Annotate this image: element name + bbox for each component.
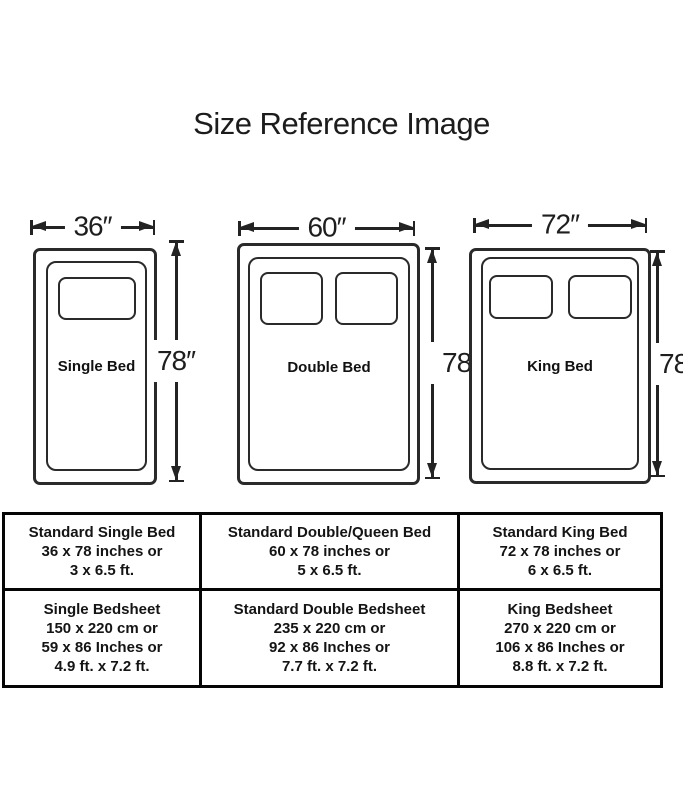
- king-bed-height-label: 78″: [651, 343, 683, 385]
- table-cell-king-bedsheet: King Bedsheet 270 x 220 cm or 106 x 86 I…: [460, 591, 660, 685]
- arrowhead-left-icon: [240, 222, 254, 232]
- cell-line: 36 x 78 inches or: [42, 542, 163, 561]
- cell-line: 60 x 78 inches or: [269, 542, 390, 561]
- cell-line: Standard Double Bedsheet: [234, 600, 426, 619]
- cell-line: 5 x 6.5 ft.: [297, 561, 361, 580]
- single-bed-diagram: Single Bed: [33, 248, 157, 485]
- cell-line: Standard Double/Queen Bed: [228, 523, 431, 542]
- double-bed-diagram: Double Bed: [237, 243, 420, 485]
- arrowhead-right-icon: [631, 219, 645, 229]
- cell-line: Standard King Bed: [492, 523, 627, 542]
- size-reference-page: Size Reference Image 36″ Single Bed 78″ …: [0, 0, 683, 800]
- arrowhead-down-icon: [427, 463, 437, 477]
- pillow-row: [483, 275, 637, 319]
- cell-line: 3 x 6.5 ft.: [70, 561, 134, 580]
- arrowhead-down-icon: [171, 466, 181, 480]
- table-cell-standard-double-bedsheet: Standard Double Bedsheet 235 x 220 cm or…: [202, 591, 460, 685]
- cell-line: 4.9 ft. x 7.2 ft.: [54, 657, 149, 676]
- single-bed-height-label: 78″: [154, 340, 198, 382]
- pillow-row: [250, 272, 408, 325]
- arrowhead-right-icon: [139, 221, 153, 231]
- arrowhead-left-icon: [32, 221, 46, 231]
- single-bed-mattress: Single Bed: [46, 261, 147, 471]
- cell-line: King Bedsheet: [507, 600, 612, 619]
- cell-line: 8.8 ft. x 7.2 ft.: [512, 657, 607, 676]
- cell-line: 59 x 86 Inches or: [42, 638, 163, 657]
- double-bed-mattress: Double Bed: [248, 257, 410, 471]
- pillow: [489, 275, 553, 319]
- pillow: [260, 272, 323, 325]
- arrowhead-up-icon: [427, 249, 437, 263]
- cell-line: Single Bedsheet: [44, 600, 161, 619]
- king-bed-mattress: King Bed: [481, 257, 639, 470]
- arrowhead-up-icon: [652, 252, 662, 266]
- pillow: [568, 275, 632, 319]
- table-cell-single-bedsheet: Single Bedsheet 150 x 220 cm or 59 x 86 …: [5, 591, 202, 685]
- table-cell-standard-king-bed: Standard King Bed 72 x 78 inches or 6 x …: [460, 515, 660, 588]
- cell-line: 106 x 86 Inches or: [495, 638, 624, 657]
- king-bed-label: King Bed: [483, 358, 637, 375]
- king-bed-diagram: King Bed: [469, 248, 651, 484]
- page-title: Size Reference Image: [0, 106, 683, 142]
- cell-line: 270 x 220 cm or: [504, 619, 616, 638]
- cell-line: 6 x 6.5 ft.: [528, 561, 592, 580]
- arrowhead-up-icon: [171, 242, 181, 256]
- table-row-bed-sizes: Standard Single Bed 36 x 78 inches or 3 …: [5, 515, 660, 591]
- size-reference-table: Standard Single Bed 36 x 78 inches or 3 …: [2, 512, 663, 688]
- single-bed-width-label: 36″: [64, 210, 120, 242]
- arrowhead-right-icon: [399, 222, 413, 232]
- table-cell-standard-double-queen-bed: Standard Double/Queen Bed 60 x 78 inches…: [202, 515, 460, 588]
- cell-line: 150 x 220 cm or: [46, 619, 158, 638]
- arrowhead-left-icon: [475, 219, 489, 229]
- pillow: [335, 272, 398, 325]
- double-bed-width-label: 60″: [298, 211, 354, 243]
- double-bed-label: Double Bed: [250, 359, 408, 376]
- table-row-bedsheet-sizes: Single Bedsheet 150 x 220 cm or 59 x 86 …: [5, 591, 660, 685]
- pillow-row: [48, 277, 145, 320]
- cell-line: 92 x 86 Inches or: [269, 638, 390, 657]
- table-cell-standard-single-bed: Standard Single Bed 36 x 78 inches or 3 …: [5, 515, 202, 588]
- cell-line: Standard Single Bed: [29, 523, 176, 542]
- cell-line: 235 x 220 cm or: [274, 619, 386, 638]
- cell-line: 72 x 78 inches or: [500, 542, 621, 561]
- single-bed-label: Single Bed: [48, 358, 145, 375]
- king-bed-width-label: 72″: [532, 208, 588, 240]
- pillow: [58, 277, 136, 320]
- cell-line: 7.7 ft. x 7.2 ft.: [282, 657, 377, 676]
- arrowhead-down-icon: [652, 461, 662, 475]
